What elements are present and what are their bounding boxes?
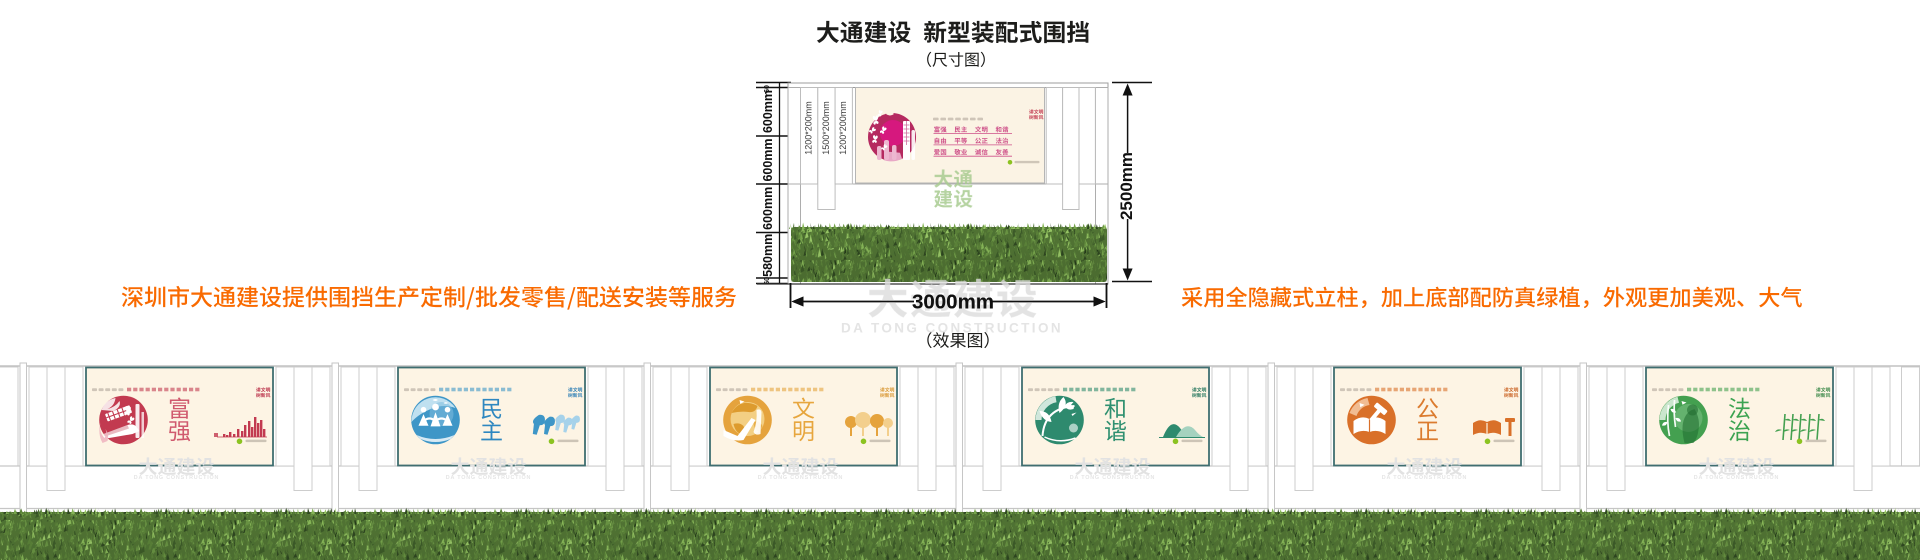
- svg-text:DA TONG CONSTRUCTION: DA TONG CONSTRUCTION: [758, 475, 843, 481]
- svg-text:600mm: 600mm: [761, 138, 775, 181]
- svg-text:600mm: 600mm: [761, 90, 775, 133]
- svg-text:580mm: 580mm: [761, 234, 775, 277]
- svg-text:DA TONG CONSTRUCTION: DA TONG CONSTRUCTION: [841, 321, 1063, 336]
- svg-text:600mm: 600mm: [761, 187, 775, 230]
- svg-text:60: 60: [764, 85, 771, 93]
- svg-text:DA TONG CONSTRUCTION: DA TONG CONSTRUCTION: [446, 475, 531, 481]
- svg-text:DA TONG CONSTRUCTION: DA TONG CONSTRUCTION: [1070, 475, 1155, 481]
- svg-text:DA TONG CONSTRUCTION: DA TONG CONSTRUCTION: [1382, 475, 1467, 481]
- svg-text:1200*200mm: 1200*200mm: [804, 101, 814, 155]
- svg-text:DA TONG CONSTRUCTION: DA TONG CONSTRUCTION: [134, 475, 219, 481]
- svg-text:2500mm: 2500mm: [1117, 152, 1136, 220]
- svg-text:1500*200mm: 1500*200mm: [821, 101, 831, 155]
- svg-text:3000mm: 3000mm: [912, 291, 994, 314]
- svg-text:DA TONG CONSTRUCTION: DA TONG CONSTRUCTION: [1694, 475, 1779, 481]
- svg-text:1200*200mm: 1200*200mm: [838, 101, 848, 155]
